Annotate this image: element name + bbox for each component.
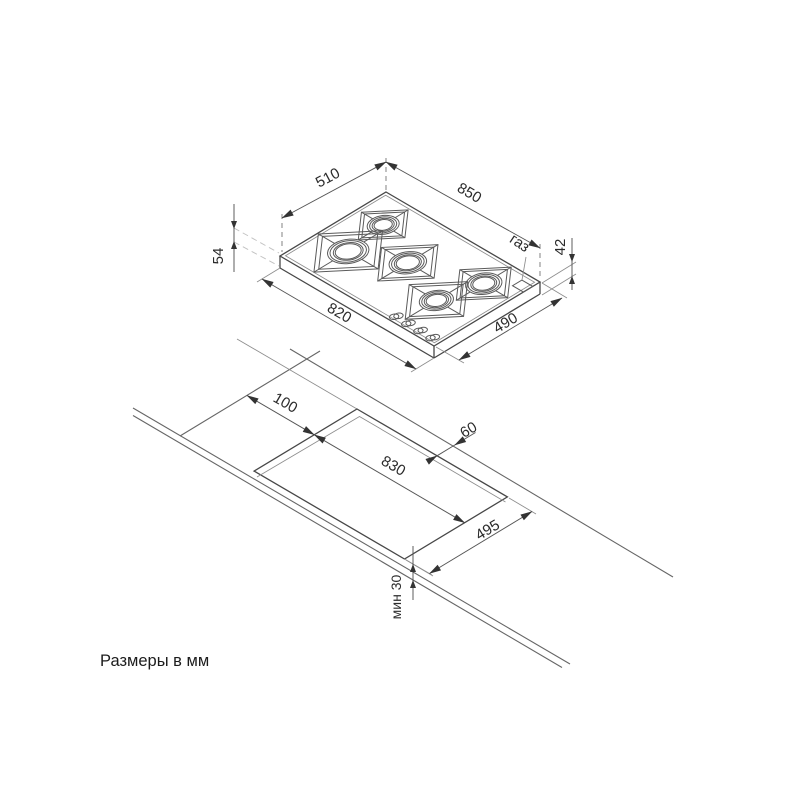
gas-connection (513, 280, 533, 292)
hob-isometric-view: 510 850 820 490 54 42 газ (210, 158, 576, 372)
dimension-offset-left-label: 100 (270, 389, 300, 416)
worktop-cutout-view: 100 60 830 495 мин 30 (133, 339, 673, 668)
dimension-offset-back-label: 60 (457, 419, 480, 442)
hob-installation-diagram: 510 850 820 490 54 42 газ (0, 0, 800, 800)
cutout-dimension-lines (247, 396, 536, 601)
dimension-height-body-label: 42 (552, 239, 569, 256)
gas-connection-label: газ (506, 231, 532, 256)
dimension-front-min-label: мин 30 (388, 574, 404, 619)
dimension-width-bottom-label: 820 (324, 299, 354, 326)
dimension-cutout-width-label: 495 (473, 516, 503, 543)
cutout-opening (237, 339, 507, 575)
technical-drawing-page: 510 850 820 490 54 42 газ (0, 0, 800, 800)
dimension-depth-bottom-label: 490 (491, 309, 521, 336)
dimension-height-total-label: 54 (210, 248, 227, 265)
dimension-cutout-length-label: 830 (378, 452, 408, 479)
drawing-title: Размеры в мм (100, 652, 209, 670)
